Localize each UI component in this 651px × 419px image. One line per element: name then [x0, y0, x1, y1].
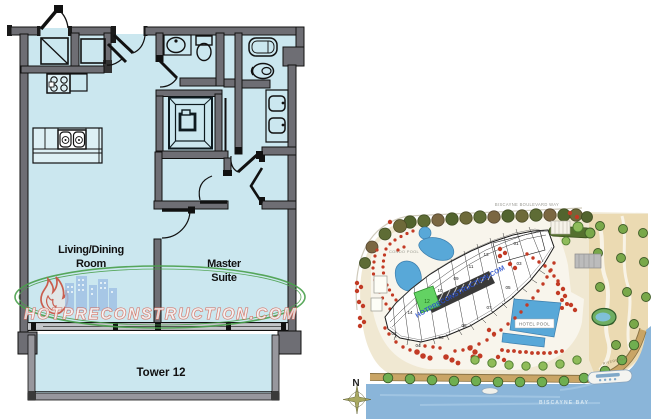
svg-text:11: 11 — [469, 264, 474, 269]
svg-text:08: 08 — [461, 323, 467, 328]
svg-text:Living/Dining: Living/Dining — [58, 244, 124, 256]
svg-text:CONDO POOL: CONDO POOL — [389, 249, 420, 254]
svg-text:13: 13 — [483, 252, 489, 257]
svg-text:06: 06 — [438, 335, 444, 340]
svg-text:N: N — [352, 378, 359, 389]
svg-text:Tower 12: Tower 12 — [137, 367, 186, 379]
svg-text:07: 07 — [486, 305, 492, 310]
svg-text:BISCAYNE BAY: BISCAYNE BAY — [539, 400, 589, 406]
svg-text:03: 03 — [516, 261, 522, 266]
svg-text:HOTEL POOL: HOTEL POOL — [519, 322, 550, 327]
svg-text:04: 04 — [415, 343, 421, 348]
svg-text:05: 05 — [505, 285, 511, 290]
svg-text:HOTPRECONSTRUCTION.COM: HOTPRECONSTRUCTION.COM — [24, 306, 298, 323]
svg-text:Suite: Suite — [211, 272, 237, 284]
svg-text:10: 10 — [437, 288, 443, 293]
svg-text:02: 02 — [391, 331, 397, 336]
svg-text:09: 09 — [453, 276, 459, 281]
svg-text:12: 12 — [424, 299, 430, 305]
svg-text:BISCAYNE BOULEVARD WAY: BISCAYNE BOULEVARD WAY — [495, 202, 559, 207]
svg-text:14: 14 — [407, 310, 413, 315]
svg-text:01: 01 — [513, 241, 519, 246]
